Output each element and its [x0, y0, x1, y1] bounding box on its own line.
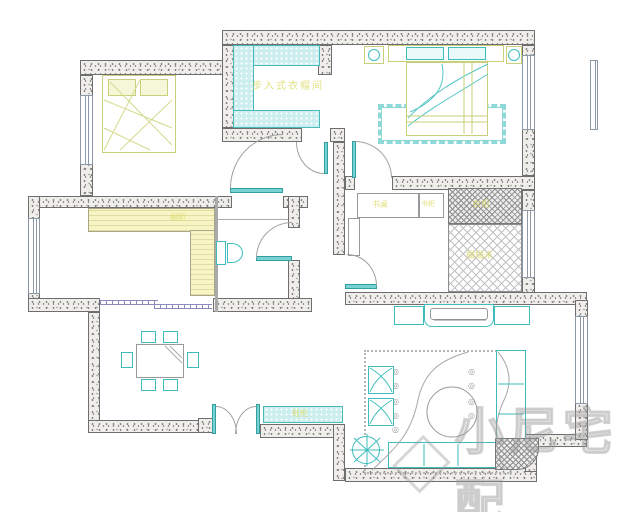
- kitchen-cabinet-label: 橱柜: [170, 214, 186, 222]
- bookcase-label: 书柜: [421, 201, 435, 208]
- rug-swirl: ◎: [468, 398, 475, 406]
- dining-chair: [187, 352, 199, 368]
- door-arc: [347, 254, 377, 286]
- sofa-bottom: [388, 442, 500, 468]
- wall-segment: [28, 298, 100, 312]
- balcony-rail: [590, 60, 598, 130]
- wall-segment: [330, 128, 345, 142]
- entry-door-arc: [235, 406, 256, 434]
- entry-door-leaf: [256, 404, 260, 434]
- rug-swirl: ◎: [392, 426, 399, 434]
- window: [80, 95, 93, 165]
- side-cabinet: [348, 218, 360, 256]
- wall-segment: [333, 424, 345, 481]
- door-leaf: [230, 188, 283, 193]
- pillow: [108, 79, 136, 96]
- rug-swirl: ◎: [468, 382, 475, 390]
- door-arc: [355, 141, 392, 178]
- dining-chair: [163, 331, 178, 343]
- desk-label: 书桌: [372, 201, 388, 209]
- dining-chair: [141, 331, 156, 343]
- dining-chair: [141, 379, 156, 391]
- nightstand-lamp: [508, 49, 520, 61]
- dining-chair: [121, 352, 133, 368]
- floor-plan-canvas: 橱柜 步入式衣帽间 书桌 书柜 衣柜 榻榻米 ◎ ◎ ◎ ◎ ◎ ◎ ◎ ◎ ◎: [0, 0, 640, 512]
- pillow: [140, 79, 168, 96]
- tatami-label: 榻榻米: [466, 252, 493, 261]
- sliding-door: [154, 304, 212, 309]
- wall-segment: [213, 298, 312, 312]
- dining-table: [136, 344, 184, 378]
- rug-swirl: ◎: [468, 368, 475, 376]
- bed: [406, 62, 488, 136]
- nightstand-lamp: [368, 49, 380, 61]
- window: [522, 210, 535, 278]
- wardrobe-label: 衣柜: [472, 201, 490, 210]
- wall-segment: [318, 45, 332, 75]
- window: [522, 55, 535, 130]
- window: [575, 316, 588, 404]
- window: [28, 218, 40, 294]
- rug-swirl: ◎: [468, 412, 475, 420]
- door-arc: [230, 134, 283, 188]
- kitchen-counter: [88, 208, 215, 232]
- desk: [357, 193, 419, 218]
- dining-chair: [163, 379, 178, 391]
- toilet-tank: [216, 241, 226, 265]
- wall-segment: [88, 312, 100, 422]
- tv-stand: [494, 306, 530, 325]
- kitchen-counter: [190, 230, 215, 296]
- door-leaf: [324, 142, 328, 174]
- shoe-cabinet-label: 鞋柜: [292, 410, 308, 418]
- armchair: [368, 398, 394, 426]
- wall-segment: [88, 420, 200, 433]
- tv: [430, 308, 488, 320]
- wall-segment: [345, 176, 355, 190]
- door-arc: [296, 142, 324, 174]
- armchair: [368, 366, 394, 394]
- tv-stand: [394, 306, 424, 325]
- shower-partition: [218, 219, 288, 220]
- closet-cabinet: [233, 110, 320, 128]
- floor-plant: [352, 436, 380, 464]
- wall-segment: [80, 60, 235, 75]
- wall-segment: [222, 30, 535, 45]
- toilet-bowl: [227, 243, 243, 263]
- sliding-door: [100, 300, 158, 305]
- walk-in-closet-label: 步入式衣帽间: [252, 82, 324, 92]
- sofa-side: [496, 350, 526, 444]
- entry-door-arc: [216, 406, 237, 434]
- pillow: [406, 47, 444, 60]
- wall-segment: [333, 142, 345, 255]
- pillow: [448, 47, 486, 60]
- door-arc: [256, 222, 292, 258]
- wall-segment: [28, 196, 232, 208]
